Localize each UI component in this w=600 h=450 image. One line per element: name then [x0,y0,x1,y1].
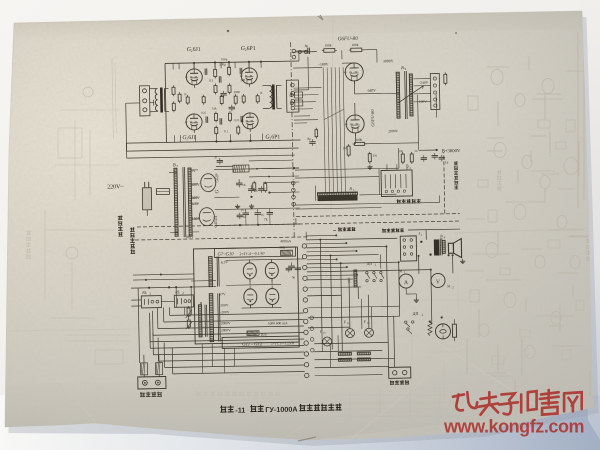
svg-text:100k: 100k [325,43,332,47]
svg-text:RL: RL [141,290,148,295]
svg-text:300V: 300V [191,183,200,187]
svg-text:200V: 200V [220,303,228,307]
svg-text:20k: 20k [399,149,404,153]
svg-text:400mA: 400mA [280,239,291,243]
svg-text:3000V: 3000V [383,59,394,63]
svg-text:–180V: –180V [317,62,329,66]
svg-text:1M: 1M [343,146,348,150]
svg-text:0.25: 0.25 [201,111,207,115]
svg-text:1μ: 1μ [445,160,449,164]
svg-text:G7~G10: G7~G10 [217,251,234,256]
svg-text:2×ΓC4—0.1/87: 2×ΓC4—0.1/87 [239,251,264,256]
svg-text:B+3000V: B+3000V [442,149,461,154]
svg-text:6P1: 6P1 [247,46,256,52]
svg-text:300: 300 [240,78,245,82]
svg-text:ДП: ДП [413,311,419,316]
svg-text:G6FU-80: G6FU-80 [370,109,375,127]
svg-text:G: G [214,189,220,193]
svg-text:100k: 100k [355,138,362,142]
svg-text:0.1: 0.1 [209,79,214,83]
svg-text:180V: 180V [185,235,194,239]
svg-text:6J1: 6J1 [193,47,201,53]
svg-text:67V: 67V [219,292,226,296]
svg-text:100k: 100k [352,43,359,47]
svg-text:–240V: –240V [417,81,428,85]
svg-text:2×ΓC1—1.25/H: 2×ΓC1—1.25/H [271,341,294,345]
svg-text:M: M [446,284,450,288]
svg-text:5μ: 5μ [292,275,296,279]
svg-text:ГУ-1000A: ГУ-1000A [265,405,297,415]
svg-text:www.kongfz.com: www.kongfz.com [443,417,584,437]
svg-text:30Ω: 30Ω [279,245,285,249]
svg-text:16: 16 [242,183,246,187]
svg-text:6.3V: 6.3V [221,260,229,264]
svg-text:-11: -11 [235,406,245,415]
svg-text:2%: 2% [373,154,378,158]
svg-text:8μ: 8μ [307,137,311,141]
svg-text:220V~: 220V~ [107,184,124,190]
svg-text:2800V: 2800V [221,328,231,332]
svg-text:0.25: 0.25 [234,118,240,122]
svg-text:1000 600 mA: 1000 600 mA [268,321,288,325]
svg-text:8μ: 8μ [305,44,309,48]
svg-text:640V: 640V [368,89,377,93]
svg-text:–200V: –200V [219,310,230,314]
svg-text:100p: 100p [221,57,228,61]
svg-text:3000: 3000 [234,90,241,94]
svg-text:6.3V: 6.3V [192,202,200,206]
svg-text:300V: 300V [191,196,200,200]
svg-text:51k: 51k [212,107,217,111]
svg-text:2000V: 2000V [221,321,231,325]
svg-text:6P1: 6P1 [271,134,280,140]
svg-text:RL: RL [174,289,181,294]
svg-text:5V: 5V [191,169,196,173]
svg-text:5Z2P: 5Z2P [214,173,219,183]
svg-text:0.1: 0.1 [224,129,228,133]
svg-text:100p: 100p [219,62,226,66]
svg-text:G6FU-80: G6FU-80 [338,36,359,42]
svg-text:8: 8 [215,156,217,160]
svg-text:ДП: ДП [367,262,373,266]
svg-text:7k: 7k [264,218,268,222]
svg-text:2000V: 2000V [388,129,398,133]
